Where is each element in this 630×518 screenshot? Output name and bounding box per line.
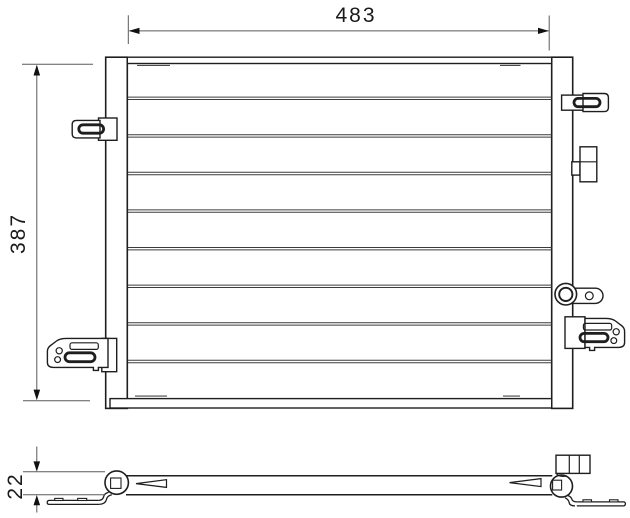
flow-marker-right (510, 479, 542, 487)
bracket-base (99, 118, 118, 140)
right-connector-block (572, 147, 597, 182)
arrow-right (538, 28, 549, 34)
right-bracket-foot (565, 496, 625, 506)
foot-tab-2 (610, 500, 619, 502)
right-port-fitting (555, 283, 603, 305)
bracket-plate (72, 120, 100, 137)
foot-tab-2 (78, 498, 87, 500)
arrow-bottom (34, 390, 41, 401)
foot-tab-1 (583, 500, 592, 502)
dimension-height-value: 387 (7, 213, 30, 254)
top-header (127, 57, 551, 63)
flow-marker-left (136, 480, 167, 488)
condenser-drawing-canvas: 483 387 (0, 0, 630, 518)
foot-curve (99, 492, 112, 504)
bottom-header (110, 399, 552, 408)
dimension-width-value: 483 (335, 4, 376, 27)
arrow-top (34, 65, 41, 76)
front-view: 483 387 (7, 4, 625, 408)
core-tube-lines (128, 97, 552, 363)
right-end-port (553, 480, 562, 490)
foot-curve (565, 496, 577, 506)
right-upper-mount-bracket (562, 94, 609, 112)
bracket-plate (583, 94, 608, 112)
extension-lines (23, 472, 105, 495)
foot-tab-1 (55, 498, 63, 500)
arrow-top (34, 461, 41, 471)
connector-body (580, 147, 597, 182)
dimension-width: 483 (128, 4, 549, 51)
connector-tab (572, 162, 580, 175)
side-profile-view: 22 (4, 447, 625, 513)
left-lower-mount-bracket (47, 338, 116, 371)
dimension-thickness-value: 22 (4, 472, 27, 499)
left-upper-mount-bracket (72, 118, 117, 140)
connector-body (556, 455, 590, 473)
arrow-left (129, 28, 140, 34)
seam-marks (135, 65, 521, 396)
side-connector-block (556, 455, 590, 476)
dimension-thickness: 22 (4, 447, 105, 513)
left-end-port (111, 478, 121, 488)
arrow-bottom (34, 495, 41, 505)
foot-plate (577, 502, 626, 506)
left-bracket-foot (47, 492, 112, 504)
right-lower-mount-bracket (565, 317, 625, 351)
